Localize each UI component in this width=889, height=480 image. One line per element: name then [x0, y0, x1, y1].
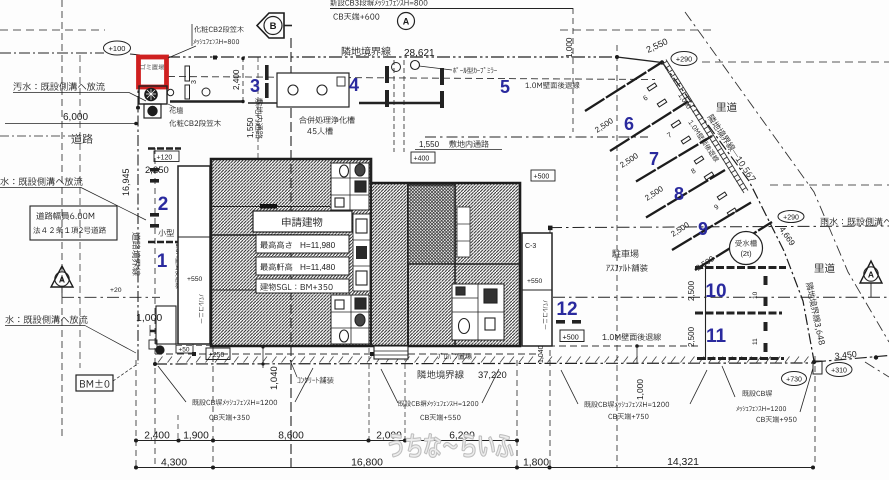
svg-text:A: A: [403, 17, 410, 27]
svg-text:1: 1: [157, 251, 168, 272]
svg-text:3: 3: [191, 80, 198, 84]
svg-text:+250: +250: [209, 352, 225, 359]
svg-text:+290: +290: [676, 55, 692, 64]
svg-text:2: 2: [158, 194, 169, 215]
svg-text:1,040: 1,040: [538, 345, 545, 363]
svg-text:6: 6: [624, 114, 634, 134]
svg-text:1,040: 1,040: [269, 366, 280, 390]
svg-text:C-3: C-3: [525, 243, 536, 250]
svg-text:16,800: 16,800: [351, 458, 383, 469]
svg-text:2,500: 2,500: [687, 280, 696, 301]
svg-text:A: A: [868, 270, 874, 280]
svg-text:11: 11: [706, 326, 727, 347]
svg-text:2,500: 2,500: [687, 326, 696, 347]
svg-text:+500: +500: [563, 333, 579, 342]
svg-text:+290: +290: [783, 215, 799, 222]
svg-text:8,600: 8,600: [278, 431, 304, 442]
svg-text:2,400: 2,400: [144, 431, 170, 442]
svg-text:(2t): (2t): [740, 249, 751, 258]
svg-text:A: A: [59, 275, 65, 285]
svg-text:5: 5: [500, 77, 510, 97]
svg-text:1,900: 1,900: [183, 431, 209, 442]
svg-text:12: 12: [556, 299, 577, 320]
svg-text:1,800: 1,800: [523, 458, 549, 469]
svg-text:+120: +120: [157, 155, 173, 162]
svg-text:7: 7: [649, 149, 659, 169]
svg-text:16,945: 16,945: [121, 168, 131, 196]
svg-text:+550: +550: [527, 278, 543, 285]
svg-text:8: 8: [674, 184, 684, 204]
svg-text:+550: +550: [187, 276, 203, 283]
svg-text:1,000: 1,000: [565, 37, 574, 58]
svg-text:+500: +500: [534, 174, 550, 181]
svg-text:1,550: 1,550: [246, 117, 255, 138]
svg-text:2,400: 2,400: [232, 69, 241, 90]
svg-text:1,000: 1,000: [635, 379, 645, 400]
svg-text:10: 10: [705, 281, 726, 302]
svg-text:+310: +310: [831, 368, 847, 375]
svg-text:4,300: 4,300: [161, 458, 187, 469]
svg-text:4: 4: [349, 75, 359, 95]
svg-text:3: 3: [250, 76, 260, 96]
svg-text:11: 11: [752, 338, 759, 345]
svg-text:6,000: 6,000: [63, 112, 88, 123]
svg-text:37,220: 37,220: [478, 369, 507, 380]
svg-text:+730: +730: [786, 377, 802, 384]
svg-text:H=11,980: H=11,980: [300, 241, 336, 250]
svg-text:14,321: 14,321: [667, 457, 699, 468]
svg-text:B: B: [270, 21, 277, 32]
svg-text:9: 9: [698, 219, 708, 239]
svg-text:1,000: 1,000: [136, 312, 162, 324]
svg-text:1,550: 1,550: [419, 140, 440, 149]
svg-text:10: 10: [752, 291, 759, 299]
svg-text:+100: +100: [109, 44, 126, 53]
svg-text:28,621: 28,621: [404, 48, 435, 59]
svg-text:+20: +20: [110, 287, 122, 294]
svg-text:+400: +400: [414, 156, 430, 163]
svg-text:H=11,480: H=11,480: [300, 263, 336, 272]
svg-text:+50: +50: [179, 347, 190, 354]
